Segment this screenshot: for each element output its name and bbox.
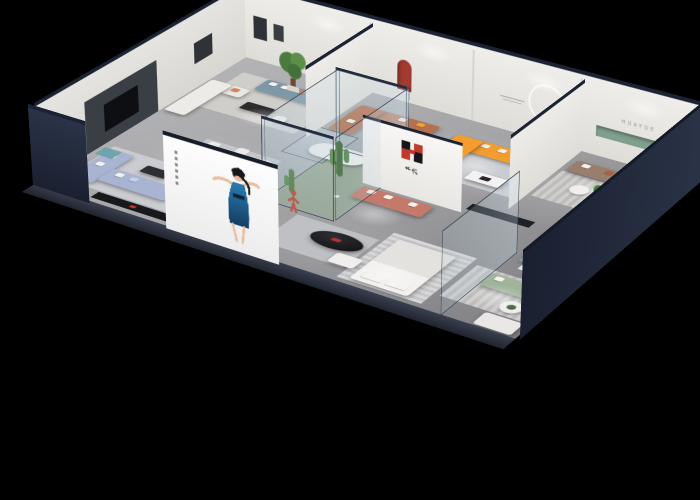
wall-art-frame	[253, 15, 267, 41]
logo-bar-right	[414, 143, 423, 164]
sofa-pillow	[580, 164, 591, 169]
black-oval-coffee-table	[303, 227, 371, 256]
sofa-pillow	[114, 172, 126, 177]
tree-graphic	[277, 42, 308, 96]
table-tray	[478, 176, 491, 182]
wall-art	[194, 33, 213, 64]
wall-spot	[414, 38, 454, 68]
terracotta-mannequin	[287, 187, 300, 215]
bed-pillow	[384, 279, 411, 291]
light-pool	[347, 256, 430, 295]
potted-tree	[277, 42, 308, 96]
sofa-pillow	[94, 161, 106, 166]
brand-logo-mark	[401, 140, 422, 164]
red-book	[330, 237, 342, 242]
white-armchair	[221, 85, 251, 98]
wall-spot	[309, 10, 347, 39]
sofa-pillow	[493, 276, 505, 282]
wall-art-frame	[273, 24, 283, 43]
wall-seam	[471, 49, 475, 120]
sofa-pillow	[415, 123, 426, 128]
sofa-pillow	[382, 194, 394, 199]
sofa-pillow	[480, 144, 491, 149]
white-loveseat	[472, 312, 523, 336]
sofa-pillow	[407, 202, 419, 207]
sofa-pillow	[497, 148, 508, 153]
billboard-woman-graphic	[204, 151, 273, 259]
mannequin-graphic	[287, 187, 300, 215]
console-accent	[129, 205, 137, 209]
sofa-pillow	[106, 154, 118, 159]
sofa-pillow	[463, 139, 474, 144]
teal-storage-cube	[95, 147, 123, 159]
bed-pillow	[360, 271, 387, 283]
armchair-pillow	[230, 88, 241, 93]
billboard-vertical-text	[174, 150, 178, 188]
sofa-pillow	[128, 177, 140, 182]
floorplan-3d: HUAYUE	[22, 55, 697, 349]
showroom-render: HUAYUE	[0, 0, 700, 500]
table-plant	[505, 304, 518, 311]
white-ottoman	[327, 252, 364, 269]
